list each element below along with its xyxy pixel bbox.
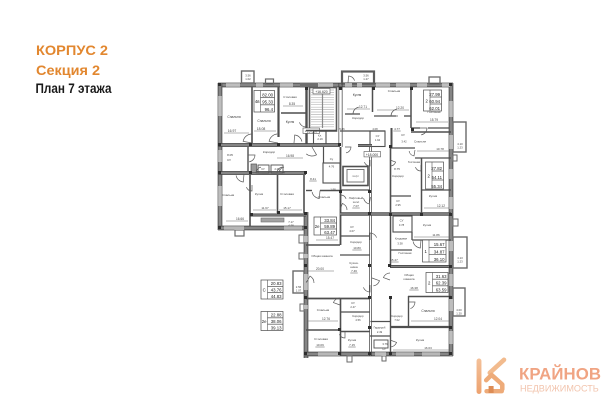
svg-text:Коридор: Коридор [352, 116, 364, 120]
svg-text:СУ: СУ [227, 158, 231, 162]
svg-text:СУ: СУ [401, 133, 405, 137]
svg-text:Спальня: Спальня [257, 119, 270, 123]
svg-text:10.09: 10.09 [316, 343, 324, 347]
svg-text:Кухня: Кухня [429, 194, 438, 198]
svg-text:Су: Су [330, 157, 334, 161]
svg-text:1.07: 1.07 [296, 289, 302, 293]
svg-text:СУ: СУ [400, 219, 404, 223]
svg-text:1.27: 1.27 [363, 77, 369, 81]
svg-text:31.63: 31.63 [436, 274, 447, 279]
svg-text:8.41: 8.41 [310, 177, 316, 181]
svg-text:96.4: 96.4 [265, 107, 274, 112]
svg-text:Столовая: Столовая [280, 192, 294, 196]
svg-text:15.47: 15.47 [326, 236, 334, 240]
svg-text:2.19: 2.19 [317, 137, 323, 141]
svg-text:Кухня: Кухня [348, 338, 357, 342]
svg-text:Общая комната: Общая комната [311, 254, 333, 258]
svg-text:Спальня: Спальня [388, 89, 401, 93]
svg-text:4.08: 4.08 [372, 127, 378, 131]
svg-text:Столовая: Столовая [283, 95, 297, 99]
svg-text:59.89: 59.89 [324, 224, 335, 229]
svg-text:Кладовая: Кладовая [395, 237, 408, 241]
svg-text:Гостиная: Гостиная [399, 251, 412, 255]
svg-text:27.99: 27.99 [429, 92, 440, 97]
svg-text:39.13: 39.13 [271, 325, 282, 330]
svg-text:16.98: 16.98 [286, 154, 294, 158]
svg-text:11.67: 11.67 [261, 206, 269, 210]
svg-text:Коридор: Коридор [352, 314, 363, 318]
svg-text:8.05: 8.05 [227, 153, 233, 157]
svg-text:62.01: 62.01 [429, 106, 440, 111]
svg-text:60.94: 60.94 [429, 99, 440, 104]
svg-text:7.15: 7.15 [349, 343, 355, 347]
svg-text:18.08: 18.08 [257, 127, 266, 131]
svg-text:10.78: 10.78 [436, 147, 444, 151]
svg-text:62.39: 62.39 [436, 281, 447, 286]
svg-text:33.84: 33.84 [324, 218, 335, 223]
svg-text:2.47: 2.47 [350, 305, 356, 309]
svg-text:5.86: 5.86 [339, 127, 345, 131]
svg-text:15.67: 15.67 [434, 242, 445, 247]
svg-text:7.02: 7.02 [394, 318, 400, 322]
svg-text:22.88: 22.88 [271, 313, 282, 318]
svg-text:3.42: 3.42 [401, 140, 407, 144]
svg-text:СУ: СУ [376, 134, 380, 138]
svg-text:1.20: 1.20 [456, 312, 462, 316]
svg-text:Столовая: Столовая [314, 337, 328, 341]
svg-text:Коридор: Коридор [263, 150, 275, 154]
svg-text:Кухня: Кухня [416, 338, 425, 342]
svg-text:Коридор: Коридор [392, 174, 404, 178]
svg-text:Кл.: Кл. [318, 134, 322, 138]
svg-text:Кухня: Кухня [353, 93, 362, 97]
svg-text:НЕДВИЖИМОСТЬ: НЕДВИЖИМОСТЬ [520, 384, 599, 394]
svg-text:10.80: 10.80 [353, 246, 361, 250]
svg-text:3.38: 3.38 [397, 242, 403, 246]
svg-text:2е: 2е [262, 319, 267, 324]
svg-text:4.76: 4.76 [329, 165, 335, 169]
svg-text:20.83: 20.83 [271, 281, 282, 286]
svg-text:Гардероб: Гардероб [374, 326, 386, 330]
svg-text:4.98: 4.98 [288, 224, 294, 228]
svg-text:7.07: 7.07 [353, 204, 359, 208]
svg-text:План 7 этажа: План 7 этажа [36, 81, 112, 96]
svg-text:Спальня: Спальня [222, 193, 235, 197]
svg-text:16.66: 16.66 [236, 217, 244, 221]
svg-text:3.78: 3.78 [399, 223, 405, 227]
svg-text:12.71: 12.71 [359, 105, 367, 109]
svg-text:Гостиная: Гостиная [408, 160, 421, 164]
svg-text:Кухня: Кухня [423, 223, 432, 227]
svg-text:12.76: 12.76 [322, 317, 330, 321]
svg-text:1.94: 1.94 [375, 138, 381, 142]
svg-text:11.86: 11.86 [432, 233, 440, 237]
svg-text:4.07: 4.07 [349, 229, 355, 233]
svg-text:8.75: 8.75 [394, 167, 400, 171]
svg-text:15.17: 15.17 [283, 206, 291, 210]
svg-text:Коридор: Коридор [350, 240, 362, 244]
svg-text:15.79: 15.79 [430, 118, 438, 122]
svg-text:15.47: 15.47 [390, 258, 398, 262]
svg-text:С: С [263, 287, 266, 292]
svg-text:43.76: 43.76 [271, 287, 282, 292]
svg-text:38.06: 38.06 [271, 319, 282, 324]
svg-text:63.59: 63.59 [436, 287, 447, 292]
svg-text:16.97: 16.97 [228, 129, 237, 133]
svg-text:Секция 2: Секция 2 [36, 62, 100, 78]
svg-text:+16.620: +16.620 [315, 90, 327, 94]
svg-text:4.77: 4.77 [394, 127, 400, 131]
svg-text:2.95: 2.95 [395, 203, 401, 207]
svg-text:Спальня: Спальня [414, 140, 426, 144]
svg-text:СУ: СУ [396, 199, 400, 203]
svg-text:54.11: 54.11 [432, 175, 443, 180]
svg-text:3.76: 3.76 [382, 342, 388, 346]
svg-text:55.34: 55.34 [431, 184, 442, 189]
svg-text:лифт: лифт [352, 174, 360, 178]
svg-text:СУ: СУ [261, 167, 265, 171]
svg-text:Спальня: Спальня [317, 308, 330, 312]
svg-text:16.63: 16.63 [424, 346, 432, 350]
svg-text:СУ: СУ [351, 301, 355, 305]
svg-text:Спальня: Спальня [227, 115, 240, 119]
svg-text:27.82: 27.82 [431, 166, 442, 171]
svg-text:20.00: 20.00 [316, 267, 324, 271]
svg-text:12.12: 12.12 [437, 204, 445, 208]
svg-text:36.10: 36.10 [434, 257, 445, 262]
svg-text:1.23: 1.23 [457, 260, 463, 264]
svg-text:1.23: 1.23 [457, 146, 463, 150]
svg-text:2.49: 2.49 [377, 330, 383, 334]
svg-text:Коридор: Коридор [391, 314, 402, 318]
svg-text:44.83: 44.83 [271, 294, 282, 299]
svg-text:комната: комната [404, 277, 415, 281]
svg-text:Кухня: Кухня [286, 120, 295, 124]
svg-text:4в: 4в [255, 99, 260, 104]
svg-text:КРАЙНОВ: КРАЙНОВ [519, 365, 601, 384]
svg-text:Кухня: Кухня [255, 192, 264, 196]
svg-text:1.02: 1.02 [245, 77, 251, 81]
svg-text:+18.000: +18.000 [366, 153, 378, 157]
svg-text:34.87: 34.87 [434, 249, 445, 254]
svg-text:2е: 2е [315, 224, 320, 229]
svg-text:63.47: 63.47 [324, 230, 335, 235]
svg-text:82.00: 82.00 [262, 92, 273, 97]
svg-text:КОРПУС 2: КОРПУС 2 [36, 42, 108, 58]
svg-text:12.20: 12.20 [396, 106, 404, 110]
svg-text:7.46: 7.46 [351, 269, 357, 273]
svg-text:Спальня: Спальня [421, 309, 434, 313]
svg-text:8.35: 8.35 [289, 102, 295, 106]
svg-text:12.04: 12.04 [434, 317, 442, 321]
svg-text:16.38: 16.38 [410, 286, 418, 290]
svg-text:95.33: 95.33 [262, 100, 273, 105]
svg-text:4.56: 4.56 [355, 318, 361, 322]
